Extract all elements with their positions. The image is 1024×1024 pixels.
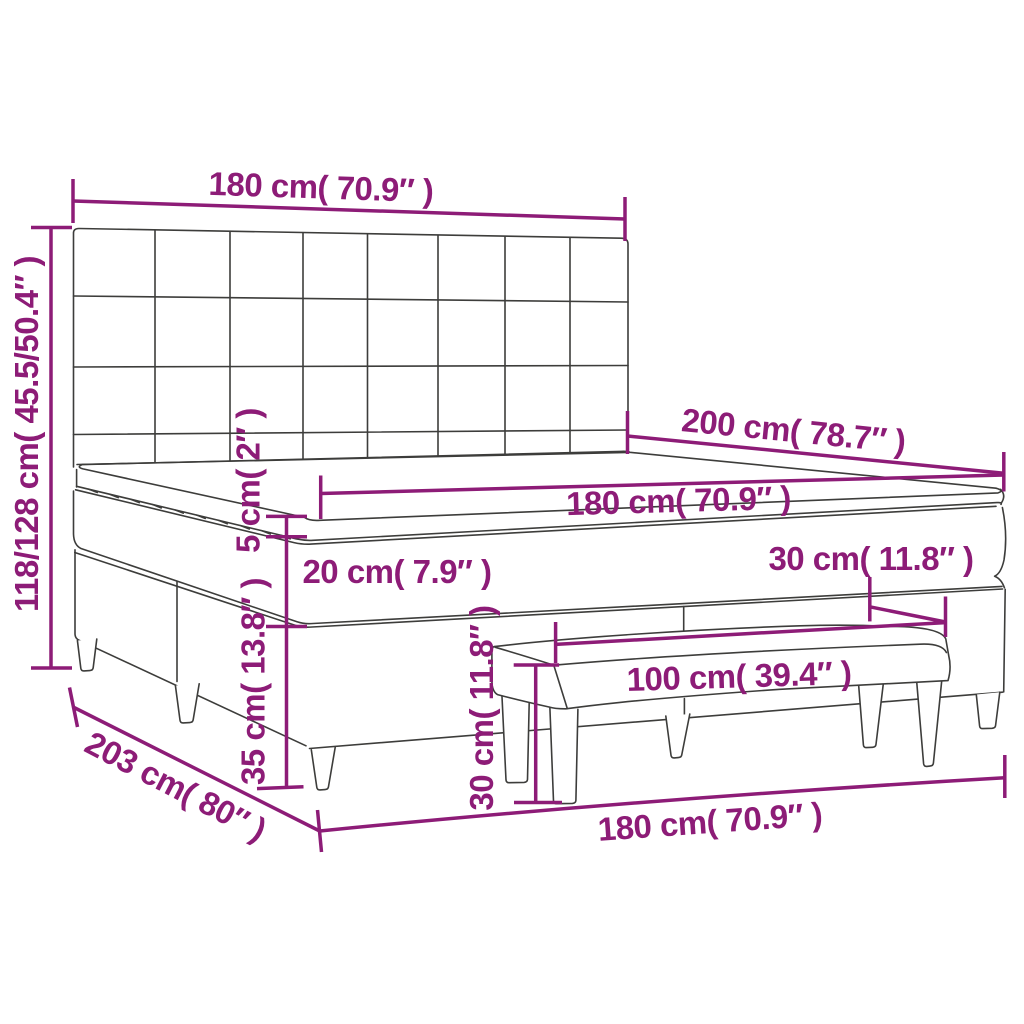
svg-text:118/128 cm( 45.5/50.4″ ): 118/128 cm( 45.5/50.4″ ): [8, 256, 45, 612]
svg-text:100 cm( 39.4″ ): 100 cm( 39.4″ ): [626, 654, 852, 698]
svg-text:30 cm( 11.8″ ): 30 cm( 11.8″ ): [463, 605, 500, 810]
svg-text:180 cm( 70.9″ ): 180 cm( 70.9″ ): [208, 165, 434, 209]
svg-text:30 cm( 11.8″ ): 30 cm( 11.8″ ): [768, 540, 973, 577]
svg-text:35 cm( 13.8″ ): 35 cm( 13.8″ ): [235, 578, 272, 785]
svg-text:20 cm( 7.9″ ): 20 cm( 7.9″ ): [302, 553, 491, 590]
svg-text:5 cm( 2″ ): 5 cm( 2″ ): [230, 408, 267, 553]
svg-text:180 cm( 70.9″ ): 180 cm( 70.9″ ): [566, 479, 792, 522]
